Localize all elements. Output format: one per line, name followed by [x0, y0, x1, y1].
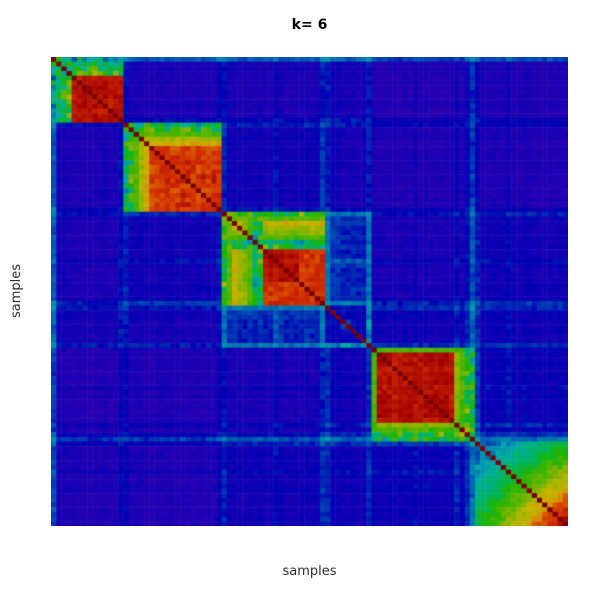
plot-area	[51, 57, 568, 526]
y-axis-label-wrap: samples	[6, 57, 26, 526]
consensus-heatmap-canvas	[51, 57, 568, 526]
figure: k= 6 samples samples	[0, 0, 600, 600]
x-axis-label: samples	[51, 564, 568, 579]
y-axis-label: samples	[9, 264, 24, 318]
chart-title: k= 6	[51, 17, 568, 33]
